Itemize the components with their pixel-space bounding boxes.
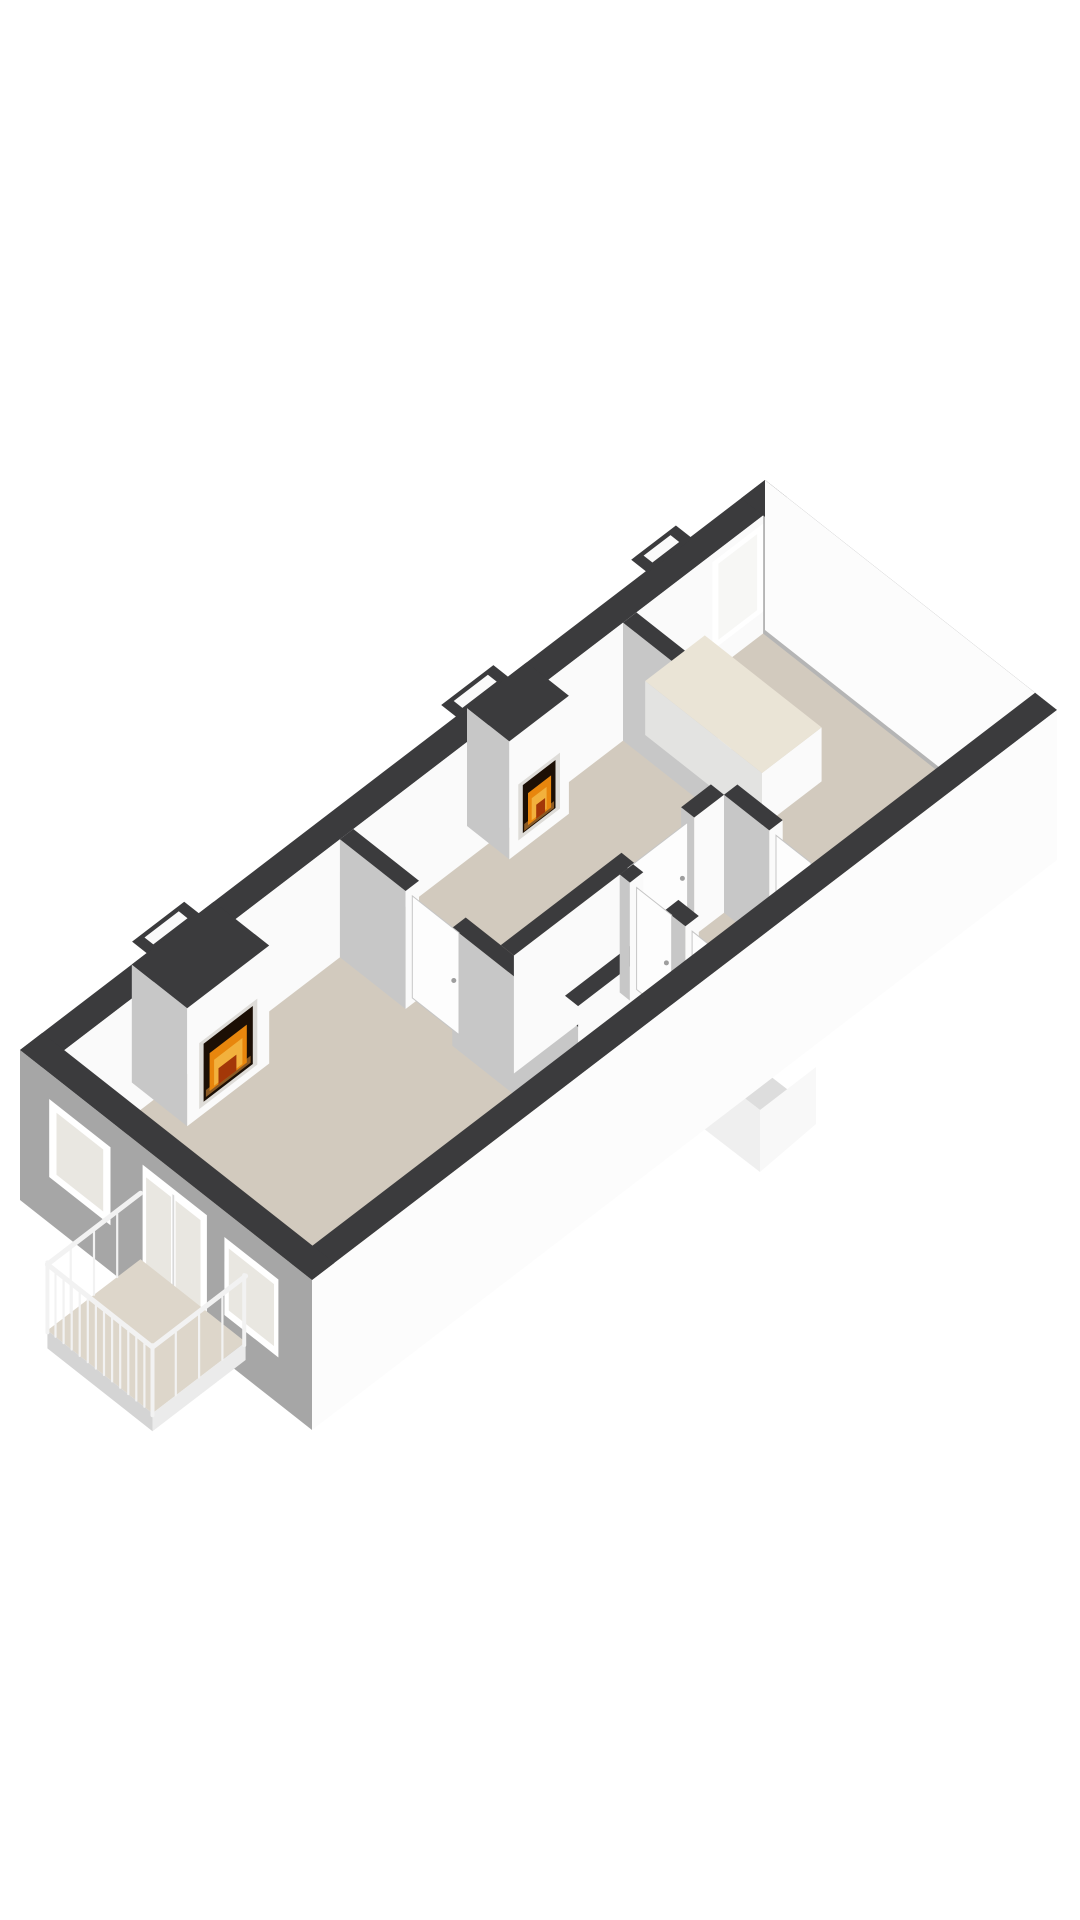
door-handle: [680, 876, 685, 881]
floorplan-3d-render: [0, 0, 1080, 1920]
wall-face: [694, 795, 724, 936]
wall-face: [620, 875, 630, 1001]
door-handle: [451, 978, 456, 983]
door-handle: [664, 960, 669, 965]
page-canvas: [0, 0, 1080, 1920]
